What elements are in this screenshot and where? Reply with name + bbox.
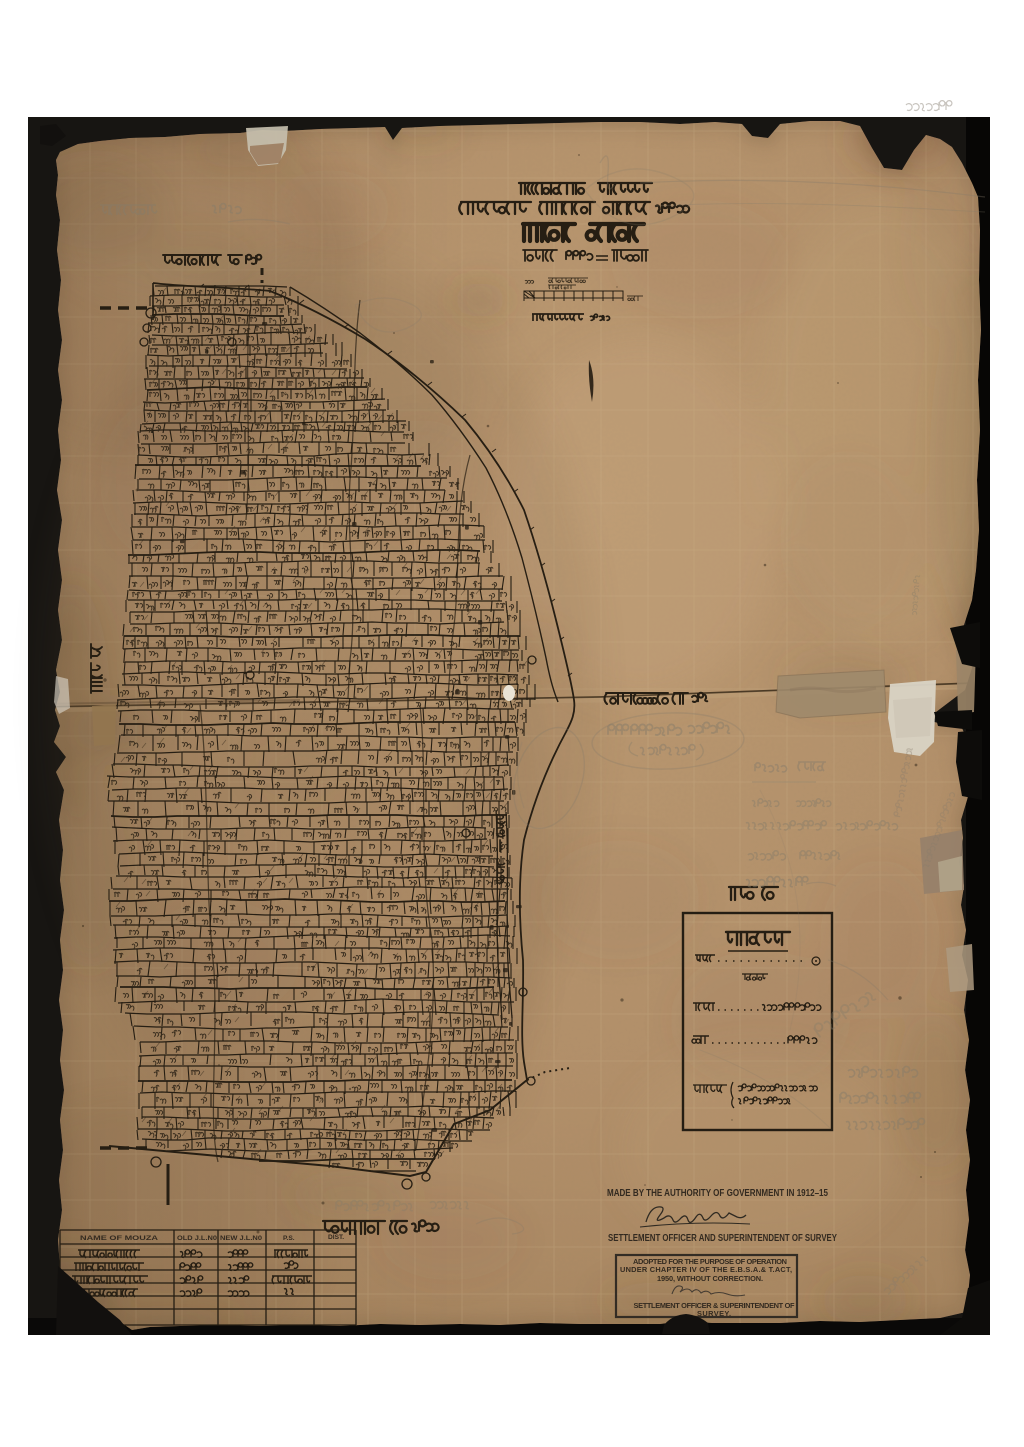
svg-text:SURVEY.: SURVEY.	[697, 1309, 731, 1318]
svg-text:UNDER CHAPTER IV OF THE E.B.S.: UNDER CHAPTER IV OF THE E.B.S.A.& T.ACT,	[620, 1265, 792, 1274]
svg-text:DIST.: DIST.	[328, 1234, 344, 1241]
svg-text:NAME OF MOUZA: NAME OF MOUZA	[80, 1235, 158, 1242]
svg-text:1950, WITHOUT CORRECTION.: 1950, WITHOUT CORRECTION.	[657, 1274, 763, 1283]
svg-text:NEW J.L.N0: NEW J.L.N0	[220, 1235, 262, 1242]
svg-text:OLD J.L.N0: OLD J.L.N0	[177, 1235, 217, 1242]
svg-text:MADE BY THE AUTHORITY OF GOVER: MADE BY THE AUTHORITY OF GOVERNMENT IN 1…	[607, 1188, 828, 1199]
svg-text:SETTLEMENT OFFICER AND SUPERIN: SETTLEMENT OFFICER AND SUPERINTENDENT OF…	[608, 1233, 837, 1244]
svg-text:P.S.: P.S.	[283, 1235, 295, 1242]
